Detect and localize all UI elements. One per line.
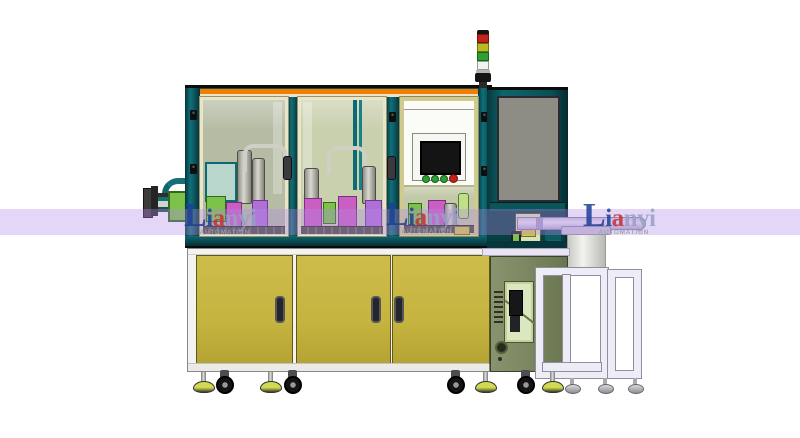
cabinet-door-handle (371, 296, 381, 323)
air-filter-unit (509, 290, 523, 316)
watermark-logo: Lianyi AUTOMATION (583, 203, 653, 237)
white-lamp-icon (477, 61, 489, 70)
machine-render-scene: Lianyi AUTOMATION Lianyi AUTOMATION Lian… (0, 0, 800, 438)
machinery-tube-arch (243, 144, 287, 172)
watermark-letter: nyi (427, 204, 459, 231)
watermark-brand: Lianyi (184, 203, 254, 232)
watermark-letter: a (213, 205, 225, 232)
watermark-letter: nyi (624, 205, 656, 232)
leveling-foot (542, 372, 563, 393)
watermark-letter: a (415, 204, 427, 231)
stand-shelf (543, 363, 601, 371)
hmi-panel (404, 101, 474, 187)
caster-wheel (446, 370, 465, 394)
watermark-letter: a (612, 205, 624, 232)
hmi-button-green-2 (431, 175, 439, 183)
lower-cabinet (187, 248, 490, 372)
watermark-brand: Lianyi (386, 202, 456, 231)
watermark-brand: Lianyi (583, 203, 653, 232)
cabinet-door-handle (394, 296, 404, 323)
section-top-edge (487, 87, 568, 90)
yellow-lamp-icon (477, 43, 489, 52)
vent-slot (494, 311, 503, 313)
hmi-panel-seam (404, 109, 474, 110)
bolt-dot (498, 357, 502, 361)
green-lamp-icon (477, 52, 489, 61)
stand-foot (627, 378, 643, 393)
hmi-button-green-3 (440, 175, 448, 183)
vent-slot (494, 296, 503, 298)
cabinet-door-3 (392, 255, 490, 364)
vent-slot (494, 291, 503, 293)
stand-post-inner (563, 275, 570, 371)
machinery-cylinder (362, 166, 376, 204)
watermark-logo: Lianyi AUTOMATION (184, 203, 254, 237)
enclosure-bottom-beam (185, 236, 492, 248)
caster-wheel (516, 370, 535, 394)
signal-tower (474, 30, 492, 88)
gray-blank-panel (497, 96, 560, 202)
red-lamp-icon (477, 34, 489, 43)
deck-strip (482, 248, 570, 256)
vent-slot (494, 321, 503, 323)
section-bottom-beam (487, 241, 568, 248)
leveling-foot (475, 372, 496, 393)
hmi-screen (420, 141, 461, 175)
stand-foot (597, 378, 613, 393)
vent-slot (494, 301, 503, 303)
air-filter-bowl (510, 316, 520, 332)
vent-slot (494, 316, 503, 318)
bowl-feeder-body (567, 234, 606, 272)
machinery-teal-tube (353, 100, 357, 190)
door-hinge (190, 164, 197, 174)
stand-foot (564, 378, 580, 393)
caster-wheel (283, 370, 302, 394)
machinery-tube-arch (327, 146, 367, 174)
vent-slot (494, 306, 503, 308)
watermark-letter: nyi (225, 205, 257, 232)
leveling-foot (193, 372, 214, 393)
outfeed-stand-frame-2 (608, 270, 641, 378)
leveling-foot (260, 372, 281, 393)
window-door-handle (283, 156, 292, 180)
round-vent (495, 341, 508, 354)
service-recess (504, 281, 534, 343)
tower-stem (479, 82, 487, 88)
door-hinge (190, 110, 197, 120)
hmi-button-red (449, 174, 458, 183)
hmi-button-green-1 (422, 175, 430, 183)
door-hinge (389, 112, 396, 122)
watermark-logo: Lianyi AUTOMATION (386, 202, 456, 236)
outfeed-stand-frame-1 (536, 268, 608, 378)
cabinet-door-handle (275, 296, 285, 323)
window-door-handle (387, 156, 396, 180)
tower-base (475, 73, 491, 82)
caster-wheel (215, 370, 234, 394)
